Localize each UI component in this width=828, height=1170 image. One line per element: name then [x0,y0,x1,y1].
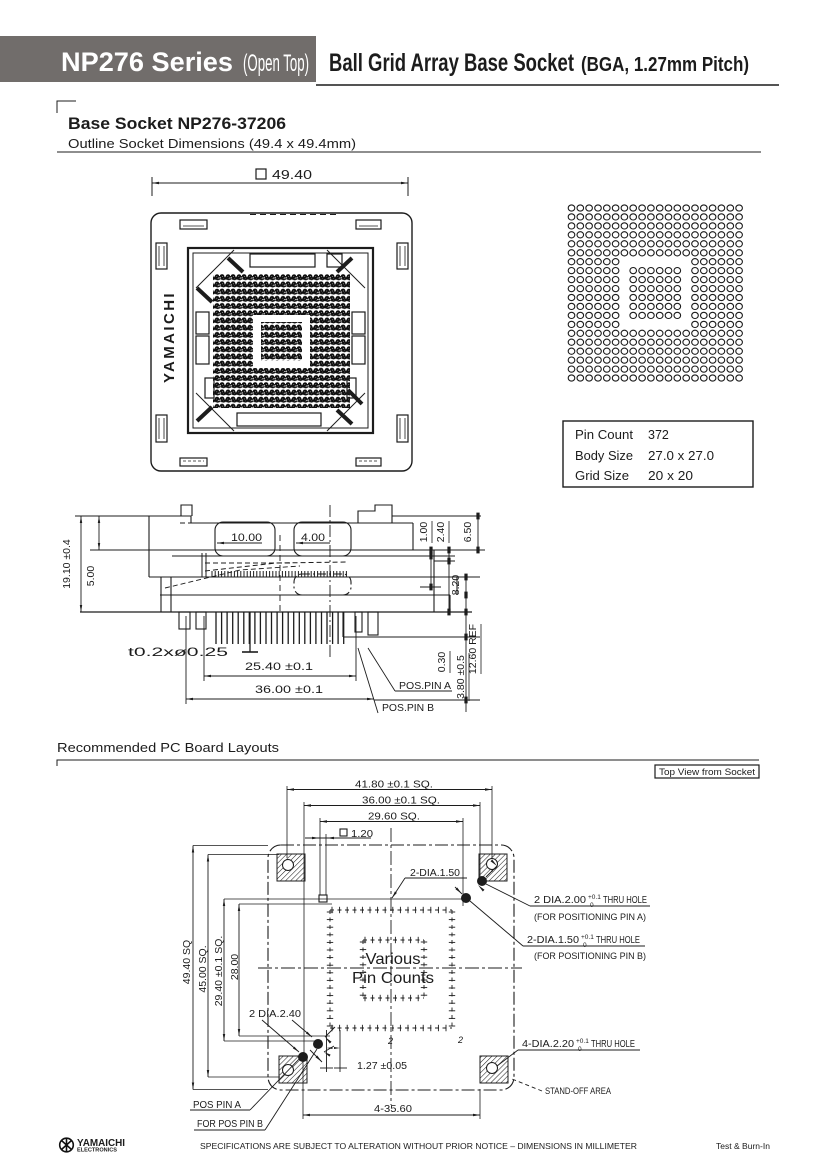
svg-text:6.50: 6.50 [462,522,474,543]
svg-text:29.60 SQ.: 29.60 SQ. [368,811,420,823]
svg-text:1.27 ±0.05: 1.27 ±0.05 [357,1061,407,1072]
svg-text:Recommended PC Board Layouts: Recommended PC Board Layouts [57,740,280,755]
svg-text:0: 0 [583,942,587,949]
svg-text:(FOR POSITIONING PIN A): (FOR POSITIONING PIN A) [534,912,646,923]
svg-text:Body Size: Body Size [575,449,633,463]
svg-text:49.40: 49.40 [272,167,312,182]
svg-text:4-DIA.2.20: 4-DIA.2.20 [522,1039,574,1050]
svg-text:8.20: 8.20 [450,575,462,596]
svg-text:41.80 ±0.1 SQ.: 41.80 ±0.1 SQ. [355,779,433,791]
svg-text:THRU HOLE: THRU HOLE [603,895,647,906]
svg-text:372: 372 [648,428,669,442]
svg-text:SPECIFICATIONS ARE SUBJECT TO: SPECIFICATIONS ARE SUBJECT TO ALTERATION… [200,1141,637,1151]
svg-text:4-35.60: 4-35.60 [374,1103,412,1115]
svg-text:Base Socket NP276-37206: Base Socket NP276-37206 [68,114,286,133]
svg-text:2: 2 [457,1035,463,1045]
svg-text:Outline Socket Dimensions (49.: Outline Socket Dimensions (49.4 x 49.4mm… [68,137,356,151]
svg-text:ELECTRONICS: ELECTRONICS [77,1148,117,1154]
svg-text:5.00: 5.00 [85,566,97,587]
svg-text:Various: Various [366,951,421,968]
svg-text:+0.1: +0.1 [588,894,601,901]
svg-text:2 DIA.2.40: 2 DIA.2.40 [249,1009,301,1020]
svg-text:POS.PIN B: POS.PIN B [382,702,434,714]
svg-text:THRU HOLE: THRU HOLE [596,935,640,946]
svg-text:+0.1: +0.1 [581,934,594,941]
svg-text:20 x 20: 20 x 20 [648,469,693,483]
svg-text:2: 2 [387,1036,393,1046]
svg-text:2.40: 2.40 [435,522,447,543]
svg-text:POS PIN A: POS PIN A [193,1100,241,1111]
svg-text:t0.2xø0.25: t0.2xø0.25 [128,647,228,659]
svg-text:Grid Size: Grid Size [575,469,629,483]
svg-text:4.00: 4.00 [301,532,325,544]
svg-text:0: 0 [578,1046,582,1053]
svg-text:25.40 ±0.1: 25.40 ±0.1 [245,661,313,673]
svg-text:(Open Top): (Open Top) [243,50,309,77]
svg-text:(BGA, 1.27mm Pitch): (BGA, 1.27mm Pitch) [581,54,749,76]
svg-text:36.00 ±0.1 SQ.: 36.00 ±0.1 SQ. [362,795,440,807]
svg-text:19.10 ±0.4: 19.10 ±0.4 [61,539,73,589]
svg-text:YAMAICHI: YAMAICHI [161,291,178,383]
svg-text:NP276 Series: NP276 Series [61,47,233,77]
svg-text:0.30: 0.30 [436,652,448,673]
svg-text:45.00 SQ.: 45.00 SQ. [197,945,209,992]
svg-text:STAND-OFF AREA: STAND-OFF AREA [545,1086,612,1097]
svg-text:POS.PIN A: POS.PIN A [399,680,451,692]
svg-text:Pin Counts: Pin Counts [352,970,434,987]
svg-text:27.0 x 27.0: 27.0 x 27.0 [648,449,714,463]
svg-text:1.00: 1.00 [418,522,430,543]
svg-text:0: 0 [590,902,594,909]
svg-text:12.60 REF: 12.60 REF [467,624,479,674]
svg-text:28.00: 28.00 [229,954,241,980]
svg-text:(FOR POSITIONING PIN B): (FOR POSITIONING PIN B) [534,951,646,962]
svg-text:2-DIA.1.50: 2-DIA.1.50 [410,868,460,879]
svg-text:FOR POS PIN B: FOR POS PIN B [197,1119,263,1130]
svg-text:THRU HOLE: THRU HOLE [591,1039,635,1050]
svg-text:Test & Burn-In: Test & Burn-In [716,1141,770,1151]
svg-text:49.40 SQ: 49.40 SQ [181,940,193,984]
svg-text:Top View from Socket: Top View from Socket [659,767,755,778]
svg-text:+0.1: +0.1 [576,1038,589,1045]
svg-text:2-DIA.1.50: 2-DIA.1.50 [527,935,579,946]
svg-text:Ball Grid Array Base Socket: Ball Grid Array Base Socket [329,49,574,77]
svg-text:36.00 ±0.1: 36.00 ±0.1 [255,684,323,696]
svg-text:3.80 ±0.5: 3.80 ±0.5 [455,655,467,699]
svg-text:10.00: 10.00 [231,532,262,544]
svg-text:29.40 ±0.1 SQ.: 29.40 ±0.1 SQ. [213,936,225,1007]
svg-text:Pin Count: Pin Count [575,428,634,442]
svg-text:2 DIA.2.00: 2 DIA.2.00 [534,895,586,906]
